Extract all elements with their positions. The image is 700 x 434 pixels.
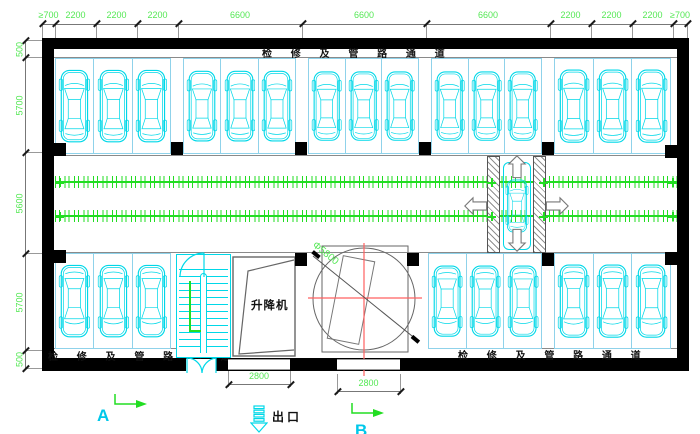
exit-label: 出口 bbox=[272, 408, 302, 425]
bottom-dim-label: 2800 bbox=[249, 372, 269, 381]
axis-a-arrow-icon bbox=[112, 393, 148, 409]
bottom-dim-line bbox=[228, 384, 290, 385]
top-dim-label: 2200 bbox=[560, 11, 580, 20]
axis-b-label: B bbox=[355, 421, 367, 434]
top-dim-extension bbox=[55, 24, 56, 38]
left-dim-line bbox=[25, 40, 26, 368]
left-dim-label: 500 bbox=[16, 345, 25, 375]
top-dim-extension bbox=[96, 24, 97, 38]
left-dim-extension bbox=[25, 40, 42, 41]
exit-arrow-icon bbox=[250, 405, 268, 433]
bottom-dim-tick bbox=[397, 388, 404, 395]
top-dim-label: ≥700 bbox=[39, 11, 59, 20]
top-dim-extension bbox=[426, 24, 427, 38]
top-dim-label: 2200 bbox=[106, 11, 126, 20]
bottom-dim-line bbox=[337, 391, 400, 392]
top-dim-label: 6600 bbox=[230, 11, 250, 20]
bottom-dim-label: 2800 bbox=[358, 379, 378, 388]
left-dim-extension bbox=[25, 152, 42, 153]
top-dim-label: 6600 bbox=[478, 11, 498, 20]
top-dim-label: 2200 bbox=[147, 11, 167, 20]
top-dim-label: 6600 bbox=[354, 11, 374, 20]
left-dim-extension bbox=[25, 57, 42, 58]
top-dim-label: 2200 bbox=[601, 11, 621, 20]
left-dim-extension bbox=[25, 350, 42, 351]
top-dim-extension bbox=[632, 24, 633, 38]
axis-a-label: A bbox=[97, 406, 109, 426]
top-dim-extension bbox=[178, 24, 179, 38]
floor-plan: 检 修 及 管 路 通 道 检 修 及 管 路 通 道 检 修 及 管 路 通 … bbox=[0, 0, 700, 434]
top-dim-extension bbox=[673, 24, 674, 38]
top-dim-extension bbox=[591, 24, 592, 38]
left-dim-label: 5700 bbox=[16, 90, 25, 120]
bottom-dim-tick bbox=[287, 381, 294, 388]
left-dim-extension bbox=[25, 253, 42, 254]
top-dim-extension bbox=[550, 24, 551, 38]
left-dim-label: 5600 bbox=[16, 188, 25, 218]
top-dim-label: 2200 bbox=[642, 11, 662, 20]
top-dim-label: ≥700 bbox=[670, 11, 690, 20]
left-dim-label: 500 bbox=[16, 34, 25, 64]
top-dim-extension bbox=[302, 24, 303, 38]
axis-b-arrow-icon bbox=[349, 402, 385, 418]
dimension-layer: ≥700220022002200660066006600220022002200… bbox=[0, 0, 700, 434]
top-dim-extension bbox=[137, 24, 138, 38]
left-dim-label: 5700 bbox=[16, 287, 25, 317]
left-dim-extension bbox=[25, 368, 42, 369]
top-dim-label: 2200 bbox=[65, 11, 85, 20]
top-dim-extension bbox=[42, 24, 43, 38]
top-dim-extension bbox=[687, 24, 688, 38]
